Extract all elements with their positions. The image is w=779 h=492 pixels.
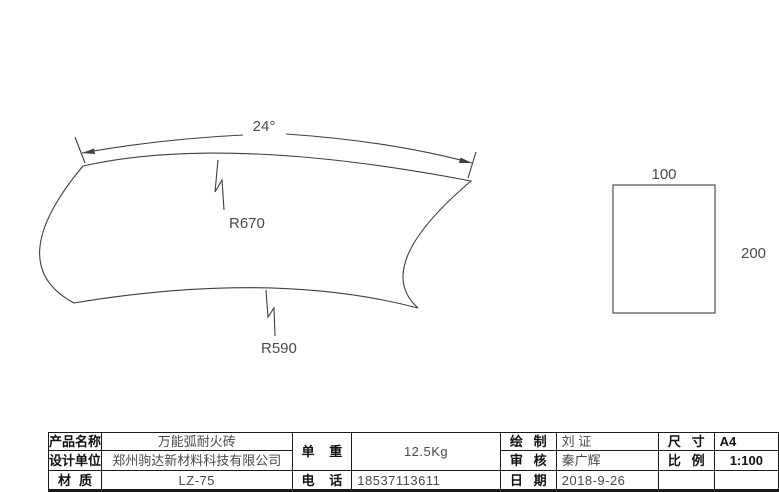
title-block-row-1: 产品名称 万能弧耐火砖 单 重 12.5Kg 绘 制 刘 证 尺 寸 A4 xyxy=(49,433,779,451)
material-label: 材 质 xyxy=(49,471,102,491)
checked-by-label: 审 核 xyxy=(500,451,556,471)
product-name-value: 万能弧耐火砖 xyxy=(102,433,293,451)
cad-sheet: { "drawing": { "angle_label": "24°", "ou… xyxy=(0,0,779,492)
date-value: 2018-9-26 xyxy=(556,471,658,491)
drawing-canvas: 24° R670 R590 100 200 xyxy=(0,0,779,430)
size-label: 尺 寸 xyxy=(658,433,714,451)
unit-weight-label: 单 重 xyxy=(292,433,352,471)
scale-value: 1:100 xyxy=(714,451,778,471)
title-block: 产品名称 万能弧耐火砖 单 重 12.5Kg 绘 制 刘 证 尺 寸 A4 设计… xyxy=(48,432,779,492)
material-value: LZ-75 xyxy=(102,471,293,491)
size-value: A4 xyxy=(714,433,778,451)
phone-label: 电 话 xyxy=(292,471,352,491)
empty-cell-scale xyxy=(714,471,778,491)
unit-weight-value: 12.5Kg xyxy=(352,433,501,471)
section-rectangle xyxy=(613,185,715,313)
phone-value: 18537113611 xyxy=(352,471,501,491)
r670-leader-line xyxy=(215,160,224,210)
checked-by-value: 秦广辉 xyxy=(556,451,658,471)
rect-width-label: 100 xyxy=(651,166,676,183)
product-name-label: 产品名称 xyxy=(49,433,102,451)
design-unit-value: 郑州驹达新材料科技有限公司 xyxy=(102,451,293,471)
title-block-row-3: 材 质 LZ-75 电 话 18537113611 日 期 2018-9-26 xyxy=(49,471,779,491)
dimension-extension-tick-right xyxy=(468,152,476,178)
r590-leader-line xyxy=(266,290,275,336)
angle-dimension-line-left xyxy=(82,135,243,153)
dimension-arrow-right-icon xyxy=(459,158,472,164)
drawn-by-value: 刘 证 xyxy=(556,433,658,451)
date-label: 日 期 xyxy=(500,471,556,491)
dimension-extension-tick-left xyxy=(75,137,85,163)
empty-cell-size xyxy=(658,471,714,491)
angle-dimension-label: 24° xyxy=(253,118,276,135)
scale-label: 比 例 xyxy=(658,451,714,471)
design-unit-label: 设计单位 xyxy=(49,451,102,471)
outer-radius-label: R670 xyxy=(229,215,265,232)
inner-radius-label: R590 xyxy=(261,340,297,357)
rect-height-label: 200 xyxy=(741,245,766,262)
angle-dimension-line-right xyxy=(286,134,472,163)
drawn-by-label: 绘 制 xyxy=(500,433,556,451)
